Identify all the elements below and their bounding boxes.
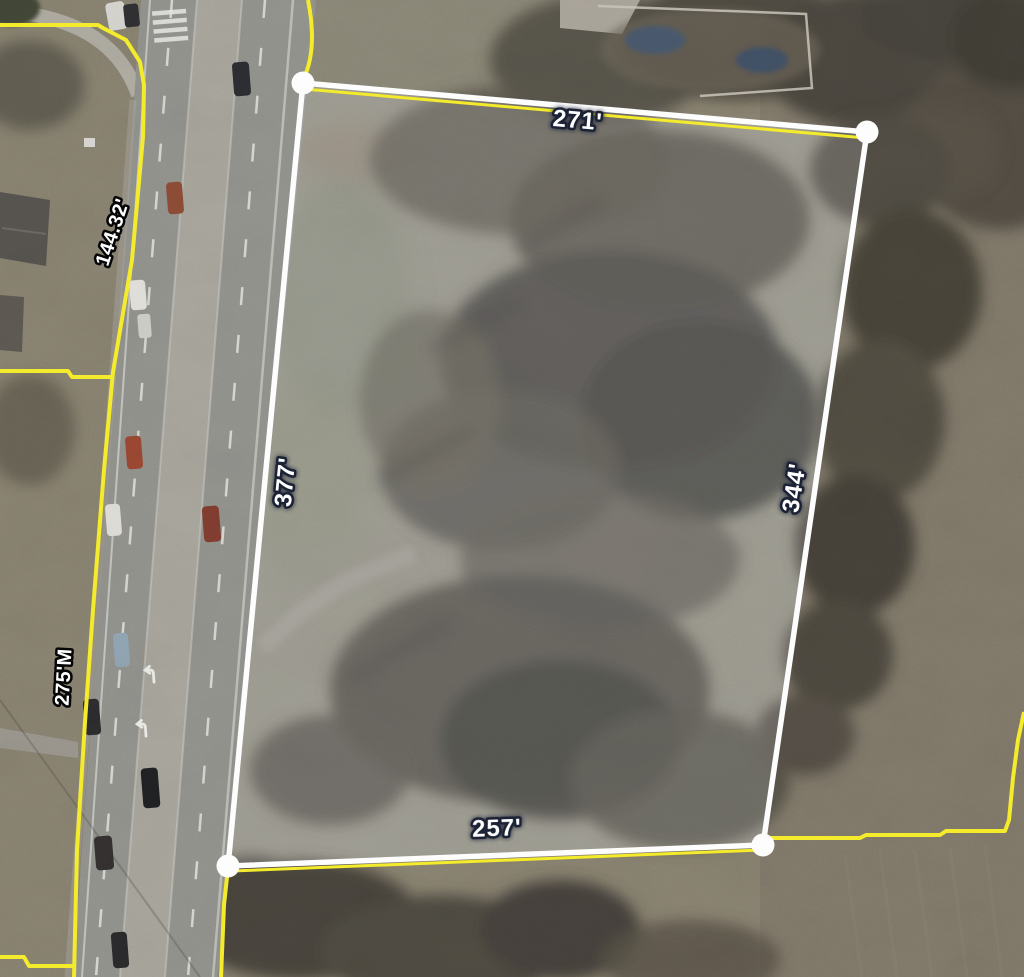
measurement-label-left: 377': [270, 456, 302, 508]
aerial-map-canvas[interactable]: 271' 344' 257' 377' 144.32' 275'M: [0, 0, 1024, 977]
measurement-vertex-handle[interactable]: [752, 834, 775, 857]
measurement-vertex-handle[interactable]: [217, 855, 240, 878]
aerial-map-viewport[interactable]: 271' 344' 257' 377' 144.32' 275'M: [0, 0, 1024, 977]
measurement-vertex-handle[interactable]: [856, 121, 879, 144]
measurement-label-top: 271': [552, 105, 604, 136]
measurement-area-fill: [228, 83, 867, 866]
measurement-label-bottom: 257': [472, 814, 523, 843]
measurement-vertex-handle[interactable]: [292, 72, 315, 95]
frontage-label-south: 275'M: [52, 648, 77, 706]
